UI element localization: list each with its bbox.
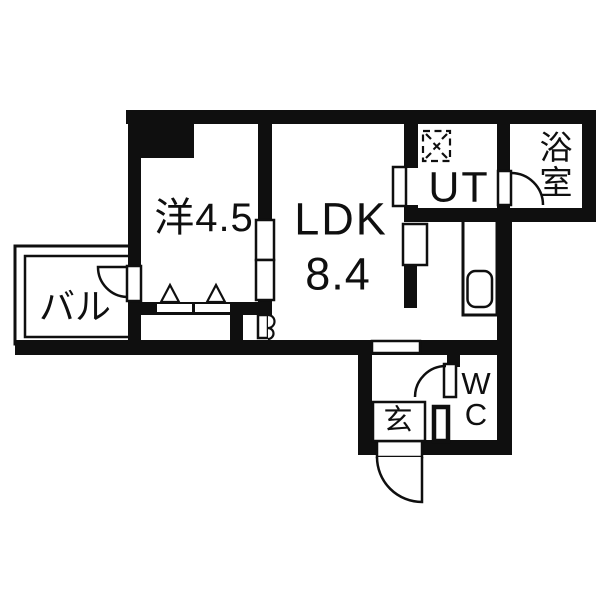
wall-right-lower bbox=[497, 208, 512, 455]
bath-door-arc bbox=[511, 173, 543, 205]
western-room-label: 洋4.5 bbox=[154, 198, 254, 238]
sliding-door-panel-2 bbox=[256, 260, 274, 300]
wc-door-panel bbox=[444, 364, 456, 397]
wall-ut-left-lower bbox=[404, 205, 418, 222]
washer-pan-diag-bl bbox=[426, 153, 431, 158]
sliding-door-panel-1 bbox=[256, 220, 274, 260]
wall-top bbox=[126, 110, 596, 124]
ldk-label: LDK bbox=[294, 197, 388, 242]
closet-door-panel-1 bbox=[156, 303, 193, 313]
bifold-door-arcs bbox=[268, 315, 275, 339]
wc-label: W C bbox=[461, 368, 490, 430]
closet-door-panel-2 bbox=[194, 303, 231, 313]
wall-kitchen-stub bbox=[404, 265, 417, 308]
wall-bottom-bar bbox=[15, 340, 512, 355]
washer-pan-diag-tl bbox=[426, 134, 431, 139]
wall-closet-stub bbox=[230, 315, 243, 341]
wall-western-ldk-upper bbox=[258, 124, 272, 220]
wc-label-char1: W bbox=[461, 368, 490, 399]
bath-label-char2: 室 bbox=[540, 165, 573, 200]
kitchen-sink bbox=[468, 271, 493, 307]
balcony-door-panel bbox=[127, 266, 141, 301]
appliance-space bbox=[403, 224, 427, 265]
entrance-label: 玄 bbox=[383, 407, 412, 436]
wc-label-char2: C bbox=[461, 399, 490, 430]
wall-western-ldk-lower bbox=[258, 300, 272, 316]
washer-pan-center-mark bbox=[434, 143, 441, 150]
ut-door-panel bbox=[393, 167, 406, 206]
wall-left-upper bbox=[128, 124, 141, 267]
balcony-label: バル bbox=[39, 289, 111, 325]
entrance-door-panel bbox=[377, 441, 422, 457]
closet-fold-triangle-1 bbox=[161, 285, 179, 302]
washing-machine-pan-icon bbox=[423, 131, 450, 161]
washer-pan-diag-tr bbox=[442, 134, 447, 139]
entrance-door-arc bbox=[377, 457, 422, 502]
bath-label-char1: 浴 bbox=[540, 130, 573, 165]
bath-label: 浴 室 bbox=[540, 130, 573, 200]
closet-fold-triangle-2 bbox=[207, 285, 225, 302]
ldk-size-label: 8.4 bbox=[305, 252, 371, 297]
ldk-hall-opening bbox=[372, 341, 420, 353]
bath-door-panel bbox=[498, 171, 511, 205]
wall-right-upper bbox=[582, 110, 596, 222]
bifold-door-panel bbox=[258, 315, 268, 338]
wall-ut-left-upper bbox=[404, 124, 418, 168]
shoe-cabinet bbox=[434, 407, 448, 441]
washer-pan-diag-br bbox=[442, 153, 447, 158]
ut-label: UT bbox=[428, 167, 489, 210]
wc-door-arc bbox=[415, 366, 446, 397]
floor-plan: 洋4.5 LDK 8.4 UT 浴 室 バル 玄 W C bbox=[0, 0, 600, 600]
